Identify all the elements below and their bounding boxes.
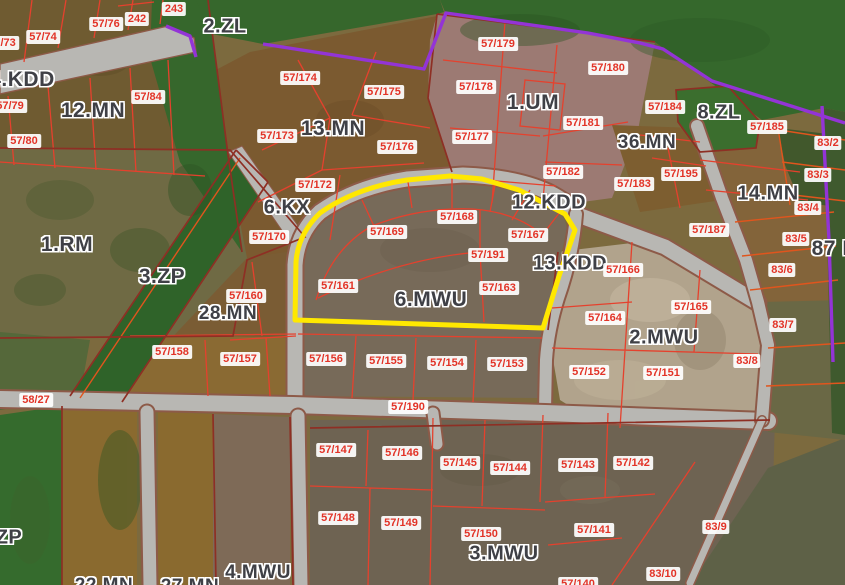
- parcel-label-83-7[interactable]: 83/7: [769, 318, 796, 332]
- parcel-label-57-191[interactable]: 57/191: [468, 248, 508, 262]
- zone-label-12-kdd: 12.KDD: [512, 192, 586, 215]
- parcel-label-57-149[interactable]: 57/149: [381, 516, 421, 530]
- parcel-label-57-161[interactable]: 57/161: [318, 279, 358, 293]
- parcel-label-242[interactable]: 242: [125, 12, 149, 26]
- parcel-label-57-150[interactable]: 57/150: [461, 527, 501, 541]
- parcel-label-57-142[interactable]: 57/142: [613, 456, 653, 470]
- parcel-label-57-84[interactable]: 57/84: [131, 90, 165, 104]
- parcel-label-57-169[interactable]: 57/169: [367, 225, 407, 239]
- parcel-label-57-174[interactable]: 57/174: [280, 71, 320, 85]
- label-layer: 2.ZL4.KDD12.MN13.MN1.UM36.MN8.ZL14.MN87 …: [0, 0, 845, 585]
- zone-label-1-um: 1.UM: [507, 91, 559, 115]
- parcel-label-57-143[interactable]: 57/143: [558, 458, 598, 472]
- zone-label-2-mwu: 2.MWU: [629, 327, 698, 350]
- parcel-label-57-140[interactable]: 57/140: [558, 577, 598, 585]
- parcel-label-57-187[interactable]: 57/187: [689, 223, 729, 237]
- parcel-label-57-157[interactable]: 57/157: [220, 352, 260, 366]
- parcel-label-57-148[interactable]: 57/148: [318, 511, 358, 525]
- zone-label-14-mn: 14.MN: [737, 183, 798, 206]
- parcel-label-57-172[interactable]: 57/172: [295, 178, 335, 192]
- parcel-label-83-3[interactable]: 83/3: [804, 168, 831, 182]
- parcel-label-57-175[interactable]: 57/175: [364, 85, 404, 99]
- parcel-label-58-27[interactable]: 58/27: [19, 393, 53, 407]
- parcel-label-57-168[interactable]: 57/168: [437, 210, 477, 224]
- parcel-label-57-152[interactable]: 57/152: [569, 365, 609, 379]
- parcel-label-83-10[interactable]: 83/10: [646, 567, 680, 581]
- parcel-label-57-184[interactable]: 57/184: [645, 100, 685, 114]
- parcel-label-57-183[interactable]: 57/183: [614, 177, 654, 191]
- parcel-label-57-145[interactable]: 57/145: [440, 456, 480, 470]
- parcel-label-57-151[interactable]: 57/151: [643, 366, 683, 380]
- parcel-label-57-163[interactable]: 57/163: [479, 281, 519, 295]
- parcel-label-57-185[interactable]: 57/185: [747, 120, 787, 134]
- parcel-label-57-74[interactable]: 57/74: [26, 30, 60, 44]
- zone-label-8-zl: 8.ZL: [697, 102, 740, 125]
- parcel-label-57-80[interactable]: 57/80: [7, 134, 41, 148]
- parcel-label-57-73[interactable]: 57/73: [0, 36, 19, 50]
- zone-label-3-mwu: 3.MWU: [469, 543, 538, 566]
- parcel-label-57-154[interactable]: 57/154: [427, 356, 467, 370]
- zone-label-28-mn: 28.MN: [199, 303, 257, 325]
- zone-label-4-mwu: 4.MWU: [225, 562, 291, 584]
- parcel-label-57-79[interactable]: 57/79: [0, 99, 27, 113]
- zone-label-87-m: 87 M: [812, 237, 845, 261]
- parcel-label-57-170[interactable]: 57/170: [249, 230, 289, 244]
- parcel-label-57-190[interactable]: 57/190: [388, 400, 428, 414]
- parcel-label-57-144[interactable]: 57/144: [490, 461, 530, 475]
- parcel-label-57-158[interactable]: 57/158: [152, 345, 192, 359]
- parcel-label-57-173[interactable]: 57/173: [257, 129, 297, 143]
- map-viewport[interactable]: 2.ZL4.KDD12.MN13.MN1.UM36.MN8.ZL14.MN87 …: [0, 0, 845, 585]
- zone-label-1-rm: 1.RM: [41, 233, 93, 257]
- parcel-label-57-160[interactable]: 57/160: [226, 289, 266, 303]
- zone-label-27-mn: 27.MN: [161, 576, 219, 585]
- parcel-label-57-164[interactable]: 57/164: [585, 311, 625, 325]
- zone-label-6-kx: 6.KX: [264, 197, 310, 220]
- zone-label-12-mn: 12.MN: [61, 99, 125, 123]
- parcel-label-83-5[interactable]: 83/5: [782, 232, 809, 246]
- parcel-label-57-195[interactable]: 57/195: [661, 167, 701, 181]
- parcel-label-57-178[interactable]: 57/178: [456, 80, 496, 94]
- parcel-label-57-177[interactable]: 57/177: [452, 130, 492, 144]
- zone-label-6-mwu: 6.MWU: [395, 288, 468, 312]
- parcel-label-83-4[interactable]: 83/4: [794, 201, 821, 215]
- parcel-label-57-180[interactable]: 57/180: [588, 61, 628, 75]
- parcel-label-57-146[interactable]: 57/146: [382, 446, 422, 460]
- zone-label-3-zp: 3.ZP: [139, 265, 185, 289]
- zone-label-2-zl: 2.ZL: [203, 16, 246, 39]
- zone-label-zp: ZP: [0, 527, 22, 550]
- zone-label-13-mn: 13.MN: [301, 117, 365, 141]
- zone-label-4-kdd: 4.KDD: [0, 68, 55, 92]
- parcel-label-57-181[interactable]: 57/181: [563, 116, 603, 130]
- parcel-label-57-182[interactable]: 57/182: [543, 165, 583, 179]
- parcel-label-57-166[interactable]: 57/166: [603, 263, 643, 277]
- parcel-label-83-6[interactable]: 83/6: [768, 263, 795, 277]
- parcel-label-57-76[interactable]: 57/76: [89, 17, 123, 31]
- parcel-label-243[interactable]: 243: [162, 2, 186, 16]
- parcel-label-83-2[interactable]: 83/2: [814, 136, 841, 150]
- parcel-label-57-153[interactable]: 57/153: [487, 357, 527, 371]
- parcel-label-83-9[interactable]: 83/9: [702, 520, 729, 534]
- zone-label-36-mn: 36.MN: [618, 132, 676, 154]
- zone-label-22-mn: 22.MN: [75, 575, 133, 585]
- parcel-label-57-155[interactable]: 57/155: [366, 354, 406, 368]
- parcel-label-57-156[interactable]: 57/156: [306, 352, 346, 366]
- parcel-label-57-141[interactable]: 57/141: [574, 523, 614, 537]
- parcel-label-57-165[interactable]: 57/165: [671, 300, 711, 314]
- parcel-label-57-179[interactable]: 57/179: [478, 37, 518, 51]
- zone-label-13-kdd: 13.KDD: [533, 253, 607, 276]
- parcel-label-57-147[interactable]: 57/147: [316, 443, 356, 457]
- parcel-label-57-167[interactable]: 57/167: [508, 228, 548, 242]
- parcel-label-57-176[interactable]: 57/176: [377, 140, 417, 154]
- parcel-label-83-8[interactable]: 83/8: [733, 354, 760, 368]
